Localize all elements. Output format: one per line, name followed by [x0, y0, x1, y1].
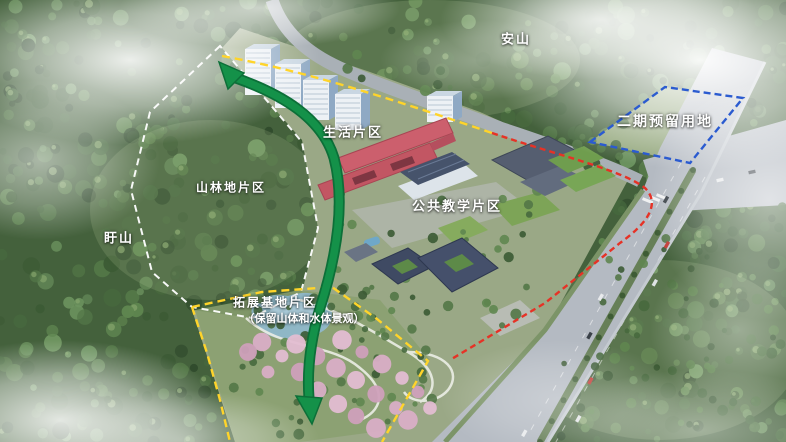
aerial-masterplan-rendering: 安山 盱山 二期预留用地 生活片区 山林地片区 公共教学片区 拓展基地片区 （保…	[0, 0, 786, 442]
masterplan-canvas	[0, 0, 786, 442]
